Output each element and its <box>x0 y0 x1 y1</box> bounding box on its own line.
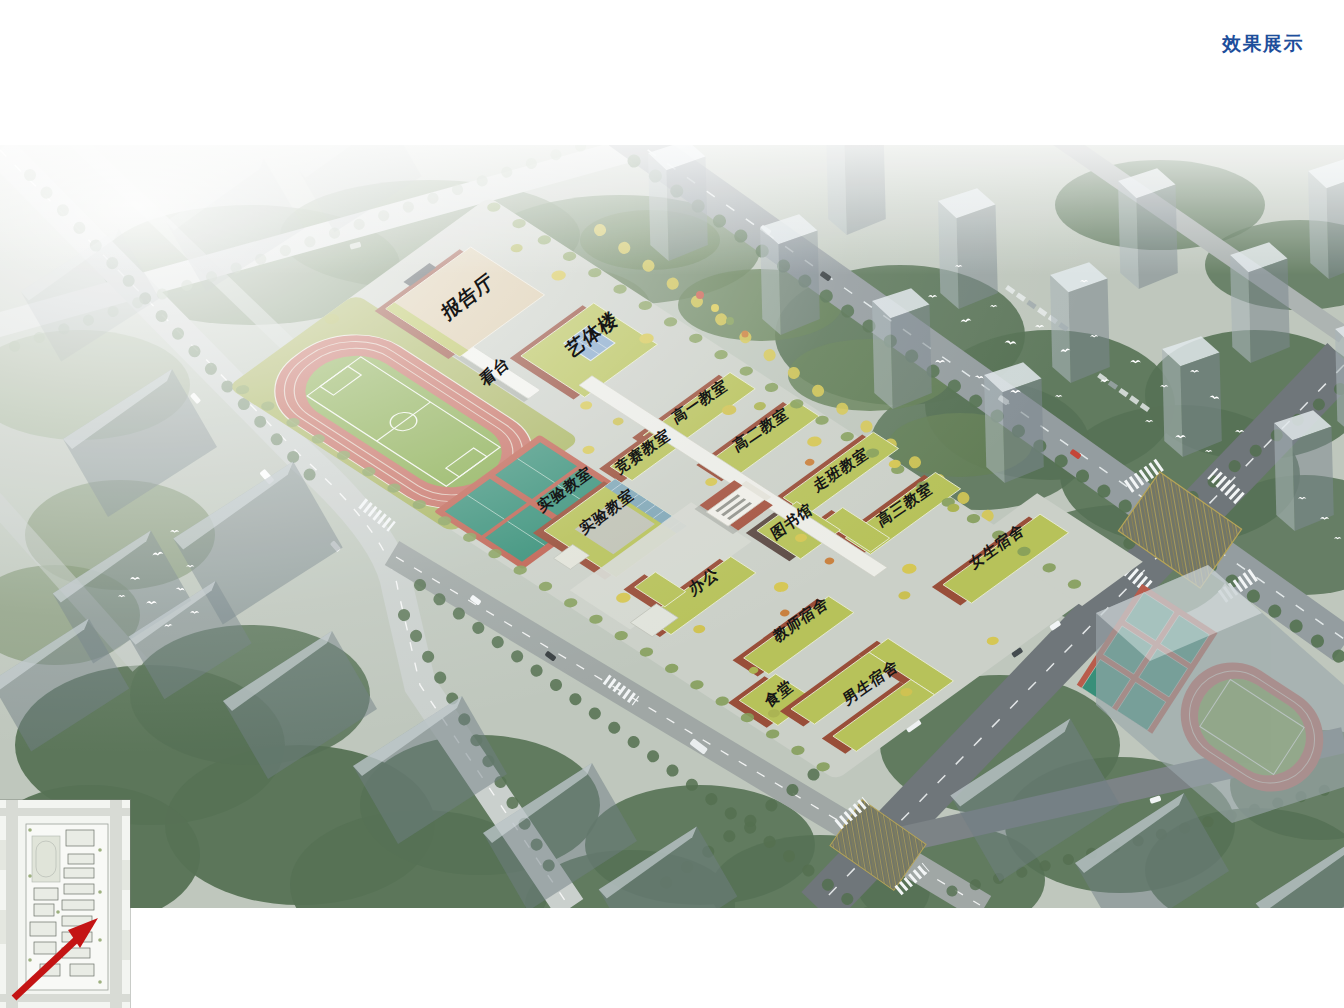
site-plan-inset <box>0 800 130 1008</box>
presentation-slide: 效果展示 <box>0 0 1344 1008</box>
plan-sports-field <box>32 836 60 882</box>
page-title: 效果展示 <box>1222 31 1304 57</box>
rendering-scene <box>0 145 1344 908</box>
haze-overlay <box>0 145 1344 908</box>
site-plan-drawing <box>0 800 130 1008</box>
aerial-rendering: 报告厅 艺体楼 看台 高一教室 高二教室 竞赛教室 实验教室 实验教室 走班教室… <box>0 145 1344 908</box>
